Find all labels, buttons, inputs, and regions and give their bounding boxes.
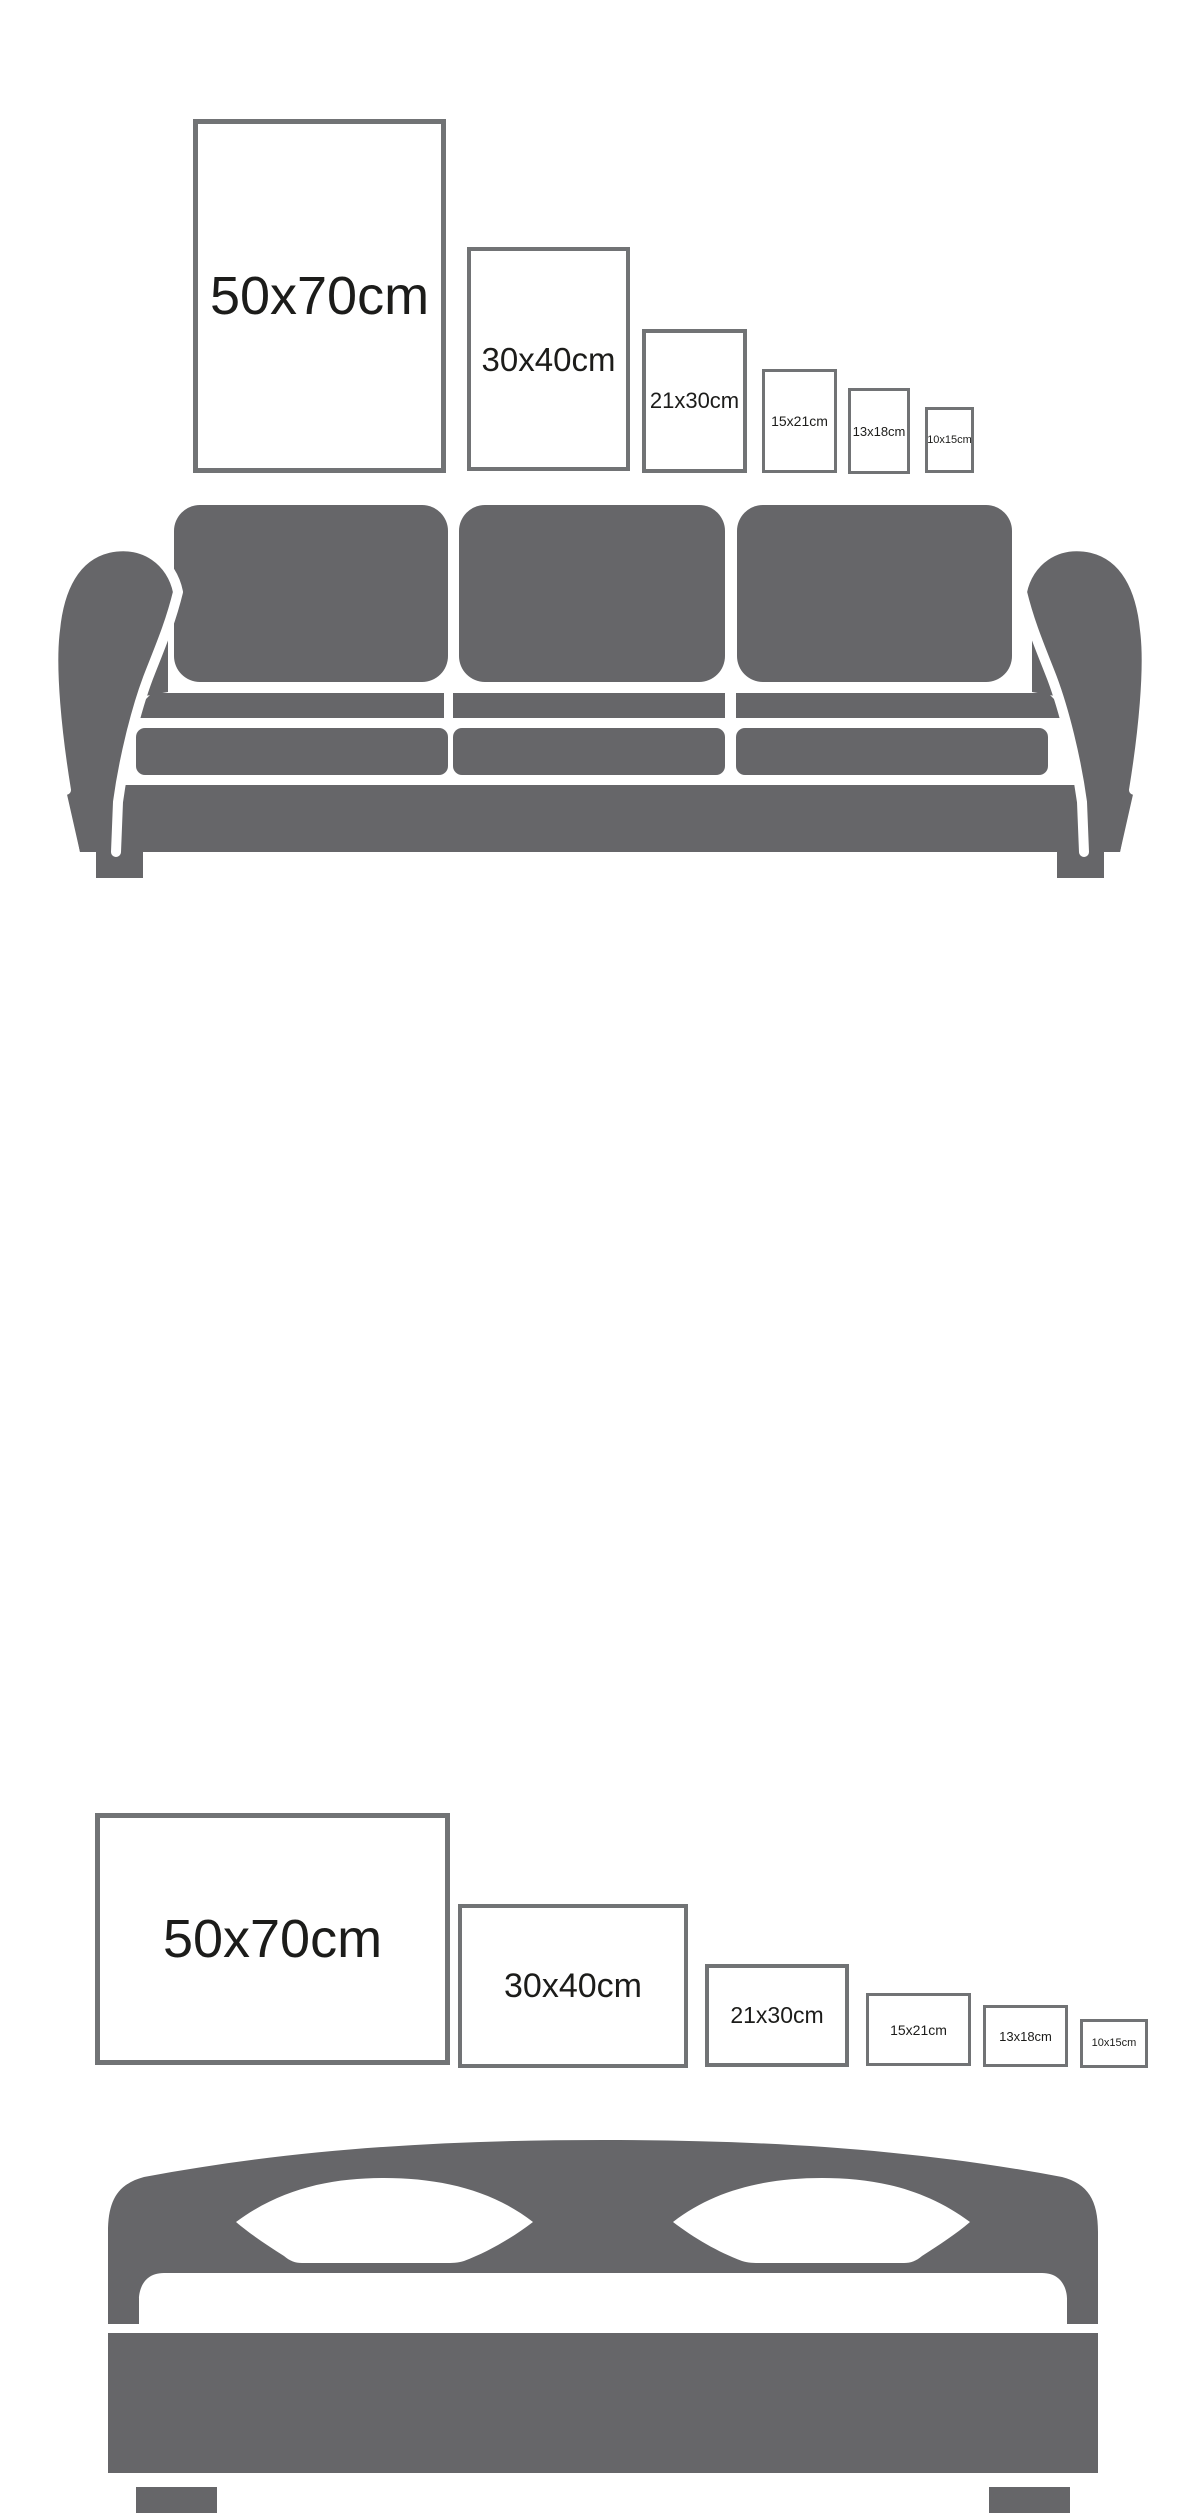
- frame-size-label: 10x15cm: [1092, 2038, 1137, 2049]
- size-guide-infographic: 50x70cm 30x40cm 21x30cm 15x21cm 13x18cm …: [0, 0, 1200, 1800]
- frame-landscape-13x18: 13x18cm: [983, 2005, 1068, 2067]
- bed-section: 50x70cm 30x40cm 21x30cm 15x21cm 13x18cm …: [0, 900, 1200, 1800]
- frame-size-label: 21x30cm: [650, 390, 739, 412]
- frame-portrait-10x15: 10x15cm: [925, 407, 974, 473]
- sofa-icon: [40, 478, 1160, 882]
- frame-landscape-15x21: 15x21cm: [866, 1993, 971, 2066]
- frame-size-label: 30x40cm: [504, 1969, 642, 2003]
- frame-size-label: 15x21cm: [890, 2023, 947, 2037]
- frame-landscape-30x40: 30x40cm: [458, 1904, 688, 2068]
- frame-size-label: 13x18cm: [999, 2030, 1052, 2043]
- frame-size-label: 50x70cm: [210, 269, 429, 323]
- frame-portrait-13x18: 13x18cm: [848, 388, 910, 474]
- frame-size-label: 13x18cm: [853, 425, 906, 438]
- frame-size-label: 21x30cm: [730, 2004, 823, 2027]
- bed-icon: [108, 2136, 1098, 2516]
- frame-portrait-15x21: 15x21cm: [762, 369, 837, 473]
- frame-size-label: 30x40cm: [482, 343, 616, 376]
- frame-size-label: 15x21cm: [771, 414, 828, 428]
- frame-portrait-50x70: 50x70cm: [193, 119, 446, 473]
- frame-portrait-30x40: 30x40cm: [467, 247, 630, 471]
- frame-landscape-21x30: 21x30cm: [705, 1964, 849, 2067]
- frame-size-label: 10x15cm: [927, 435, 972, 446]
- frame-landscape-50x70: 50x70cm: [95, 1813, 450, 2065]
- frame-size-label: 50x70cm: [163, 1912, 382, 1966]
- frame-landscape-10x15: 10x15cm: [1080, 2019, 1148, 2068]
- frame-portrait-21x30: 21x30cm: [642, 329, 747, 473]
- sofa-section: 50x70cm 30x40cm 21x30cm 15x21cm 13x18cm …: [0, 0, 1200, 900]
